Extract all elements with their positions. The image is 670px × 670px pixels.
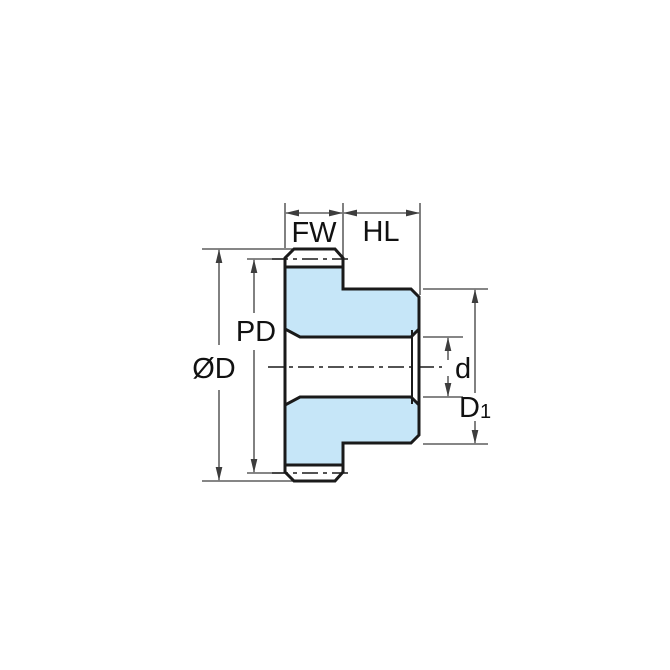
d1-label-base: D — [459, 392, 480, 424]
d1-label: D1 — [459, 392, 491, 424]
fw-label: FW — [291, 217, 337, 249]
tooth-tip-top — [285, 249, 343, 267]
pd-label: PD — [236, 316, 276, 348]
gear-dimension-diagram: FW HL PD ØD d D1 — [0, 0, 670, 670]
d1-label-subscript: 1 — [480, 401, 491, 423]
d-label: d — [455, 353, 471, 385]
gear-body-lower-half — [285, 397, 419, 465]
gear-body-upper-half — [285, 267, 419, 337]
od-label: ØD — [192, 353, 236, 385]
hl-label: HL — [362, 216, 399, 248]
gear-body — [285, 249, 419, 481]
diagram-svg: FW HL PD ØD d D1 — [0, 0, 670, 670]
